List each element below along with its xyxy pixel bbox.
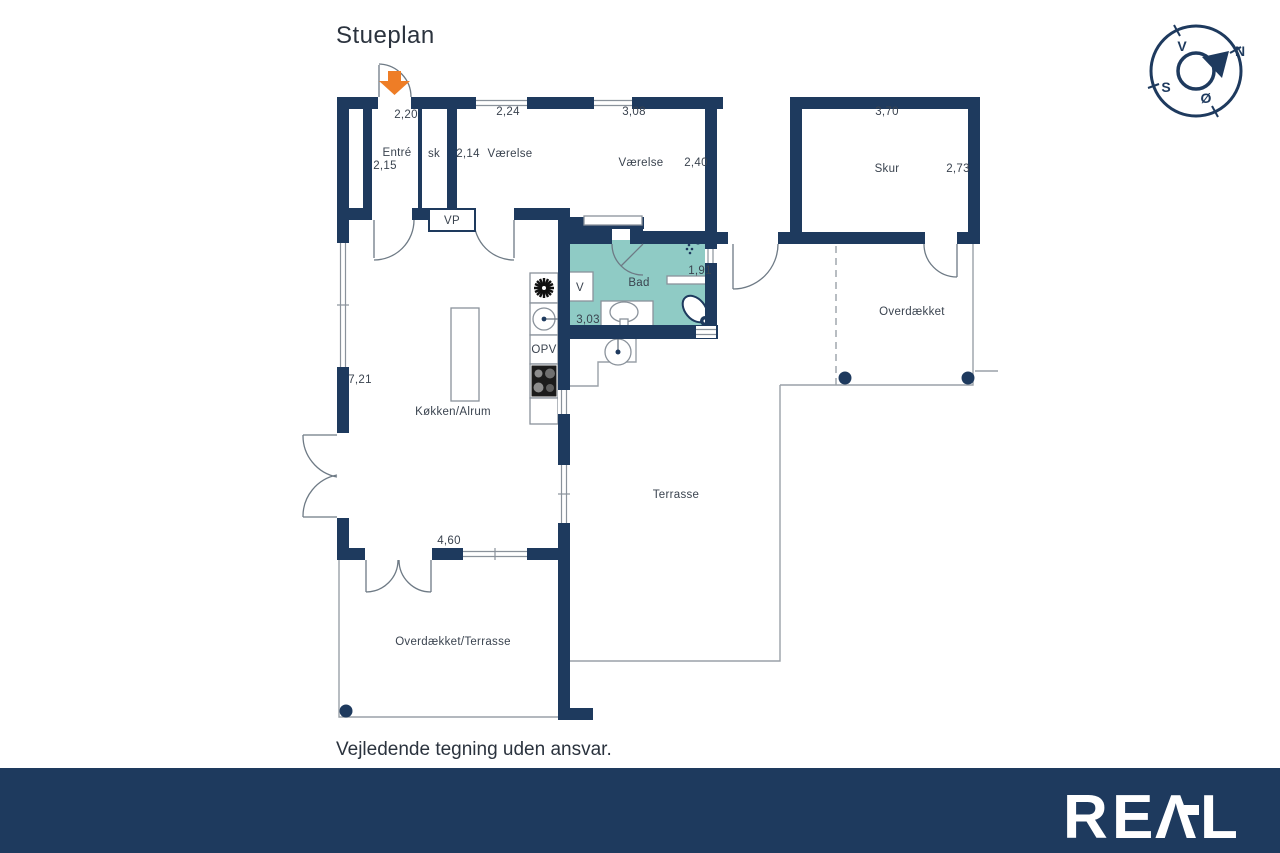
- dim-bath-width: 1,91: [688, 265, 712, 277]
- kitchen-island: [451, 308, 479, 401]
- entre-door-swing: [374, 220, 414, 260]
- compass-icon: V N S Ø: [1148, 25, 1245, 117]
- compass-south: S: [1161, 79, 1170, 95]
- dim-bath-depth: 3,03: [576, 314, 600, 326]
- room-label-shed: Skur: [875, 163, 900, 175]
- window-bottom: [463, 548, 527, 560]
- room-label-terrace: Terrasse: [653, 489, 700, 501]
- terrace-french-door-swing: [366, 560, 431, 592]
- room-label-room1: Værelse: [488, 148, 533, 160]
- page-title: Stueplan: [336, 22, 435, 49]
- room-label-sk: sk: [428, 148, 440, 160]
- wall-bath-bottom: [558, 325, 718, 339]
- heat-pump-label: VP: [444, 215, 460, 227]
- logo-letter-e: E: [1112, 783, 1154, 852]
- stove-icon: [532, 366, 557, 397]
- shed-door-swing: [924, 244, 957, 277]
- wall-shed-right: [968, 97, 980, 244]
- wall-bath-top: [640, 231, 717, 244]
- passage-door-opening: [728, 231, 778, 245]
- passage-door-swing: [733, 244, 778, 289]
- wall-right-main: [705, 97, 717, 337]
- entre-door-opening: [372, 207, 412, 221]
- wall-terrace-side: [558, 560, 570, 720]
- heat-pump-box: VP: [429, 209, 475, 231]
- terrace-outline: [570, 385, 780, 661]
- floorplan-page: OPV V: [0, 0, 1280, 853]
- disclaimer-text: Vejledende tegning uden ansvar.: [336, 739, 612, 760]
- wall-entre-niche: [363, 108, 372, 209]
- footer-bar: R E Λ L: [0, 768, 1280, 853]
- brand-logo: R E Λ L: [1063, 783, 1239, 852]
- logo-letter-r: R: [1063, 783, 1109, 852]
- shed-door-opening: [925, 231, 957, 245]
- window-kitchen-east-2: [558, 465, 570, 523]
- window-bath-south: [696, 326, 716, 338]
- dim-shed-depth: 2,73: [946, 163, 970, 175]
- terrace-post: [340, 705, 353, 718]
- entrance-arrow-icon: [379, 71, 410, 95]
- window-bath-east: [705, 249, 717, 263]
- dim-room2-depth: 2,40: [684, 157, 708, 169]
- logo-letter-l: L: [1200, 783, 1239, 852]
- wall-entre-sk: [418, 108, 422, 209]
- logo-a-crossbar: [1184, 805, 1199, 815]
- wall-bath-entry: [558, 228, 612, 244]
- wall-shed-left: [790, 97, 802, 244]
- room2-sliding-door: [584, 216, 642, 225]
- room-label-covered-terrace: Overdækket/Terrasse: [395, 636, 511, 648]
- floorplan-drawing: OPV V: [0, 0, 1280, 853]
- room-label-bath: Bad: [628, 277, 649, 289]
- window-kitchen-east-1: [558, 390, 570, 414]
- dim-shed-width: 3,70: [875, 106, 899, 118]
- dim-kitchen-width: 4,60: [437, 535, 461, 547]
- room-labels: 2,20 Entré 2,15 sk 2,24 2,14 Værelse 3,0…: [348, 106, 970, 648]
- window-left-wall: [337, 243, 349, 367]
- bathroom-sink-tap: [620, 319, 628, 326]
- covered-area-post-right: [962, 372, 975, 385]
- washing-machine-label: V: [576, 282, 584, 294]
- entrance-door-opening: [378, 96, 411, 110]
- room1-door-opening: [474, 207, 514, 221]
- logo-letter-a: Λ: [1155, 783, 1197, 852]
- room-label-entre: Entré: [383, 147, 412, 159]
- cabinet-box: [530, 398, 558, 424]
- compass-north: N: [1235, 43, 1245, 59]
- room1-door-swing: [474, 220, 514, 260]
- dim-kitchen-height: 7,21: [348, 374, 372, 386]
- dim-entre-depth: 2,15: [373, 160, 397, 172]
- dim-room2-width: 3,08: [622, 106, 646, 118]
- room-label-room2: Værelse: [619, 157, 664, 169]
- dim-room1-depth: 2,14: [456, 148, 480, 160]
- dim-room1-width: 2,24: [496, 106, 520, 118]
- extractor-fan-center: [542, 286, 546, 290]
- room-label-kitchen: Køkken/Alrum: [415, 406, 491, 418]
- compass-east: Ø: [1201, 90, 1212, 106]
- terrace-door-opening: [365, 547, 432, 561]
- garden-double-door-swing: [303, 435, 337, 517]
- wall-terrace-stub: [570, 708, 593, 720]
- garden-door-opening: [337, 433, 349, 518]
- prep-sink-drain: [542, 317, 547, 322]
- compass-west: V: [1177, 38, 1187, 54]
- kitchen-sink-drain: [616, 350, 621, 355]
- dishwasher-label: OPV: [531, 344, 556, 356]
- room-label-covered: Overdækket: [879, 306, 945, 318]
- dim-entre-width: 2,20: [394, 109, 418, 121]
- shower-partition: [667, 276, 707, 284]
- covered-area-post-left: [839, 372, 852, 385]
